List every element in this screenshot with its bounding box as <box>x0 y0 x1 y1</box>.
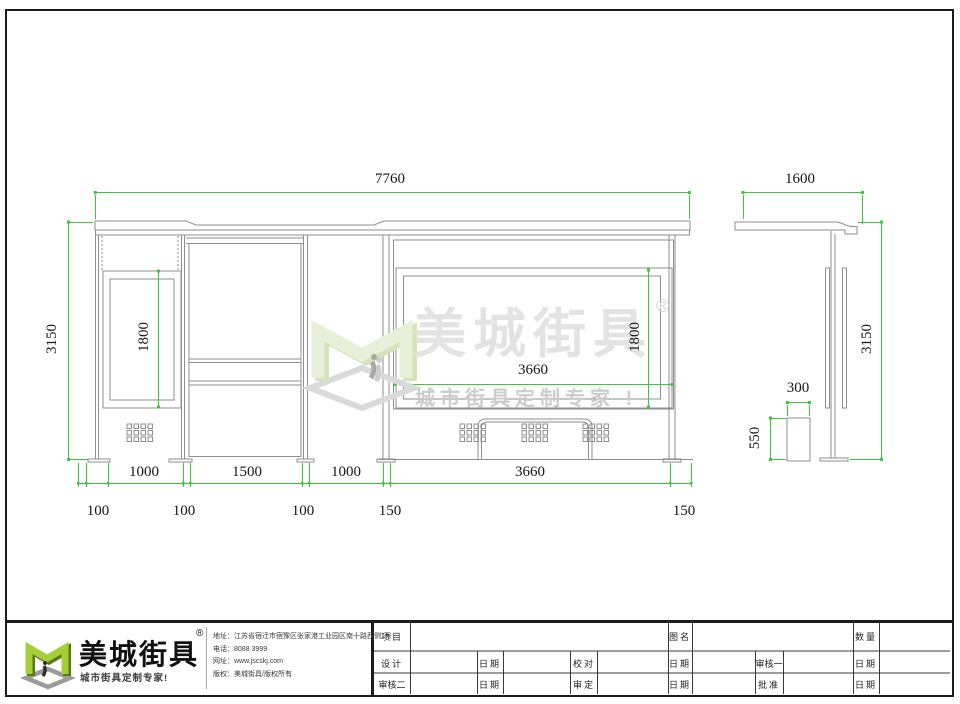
cad-sheet: 美城街具 ® 城市街具定制专家 ! 7760 1600 3150 1800 18… <box>0 0 960 704</box>
sheet-border <box>5 9 954 697</box>
